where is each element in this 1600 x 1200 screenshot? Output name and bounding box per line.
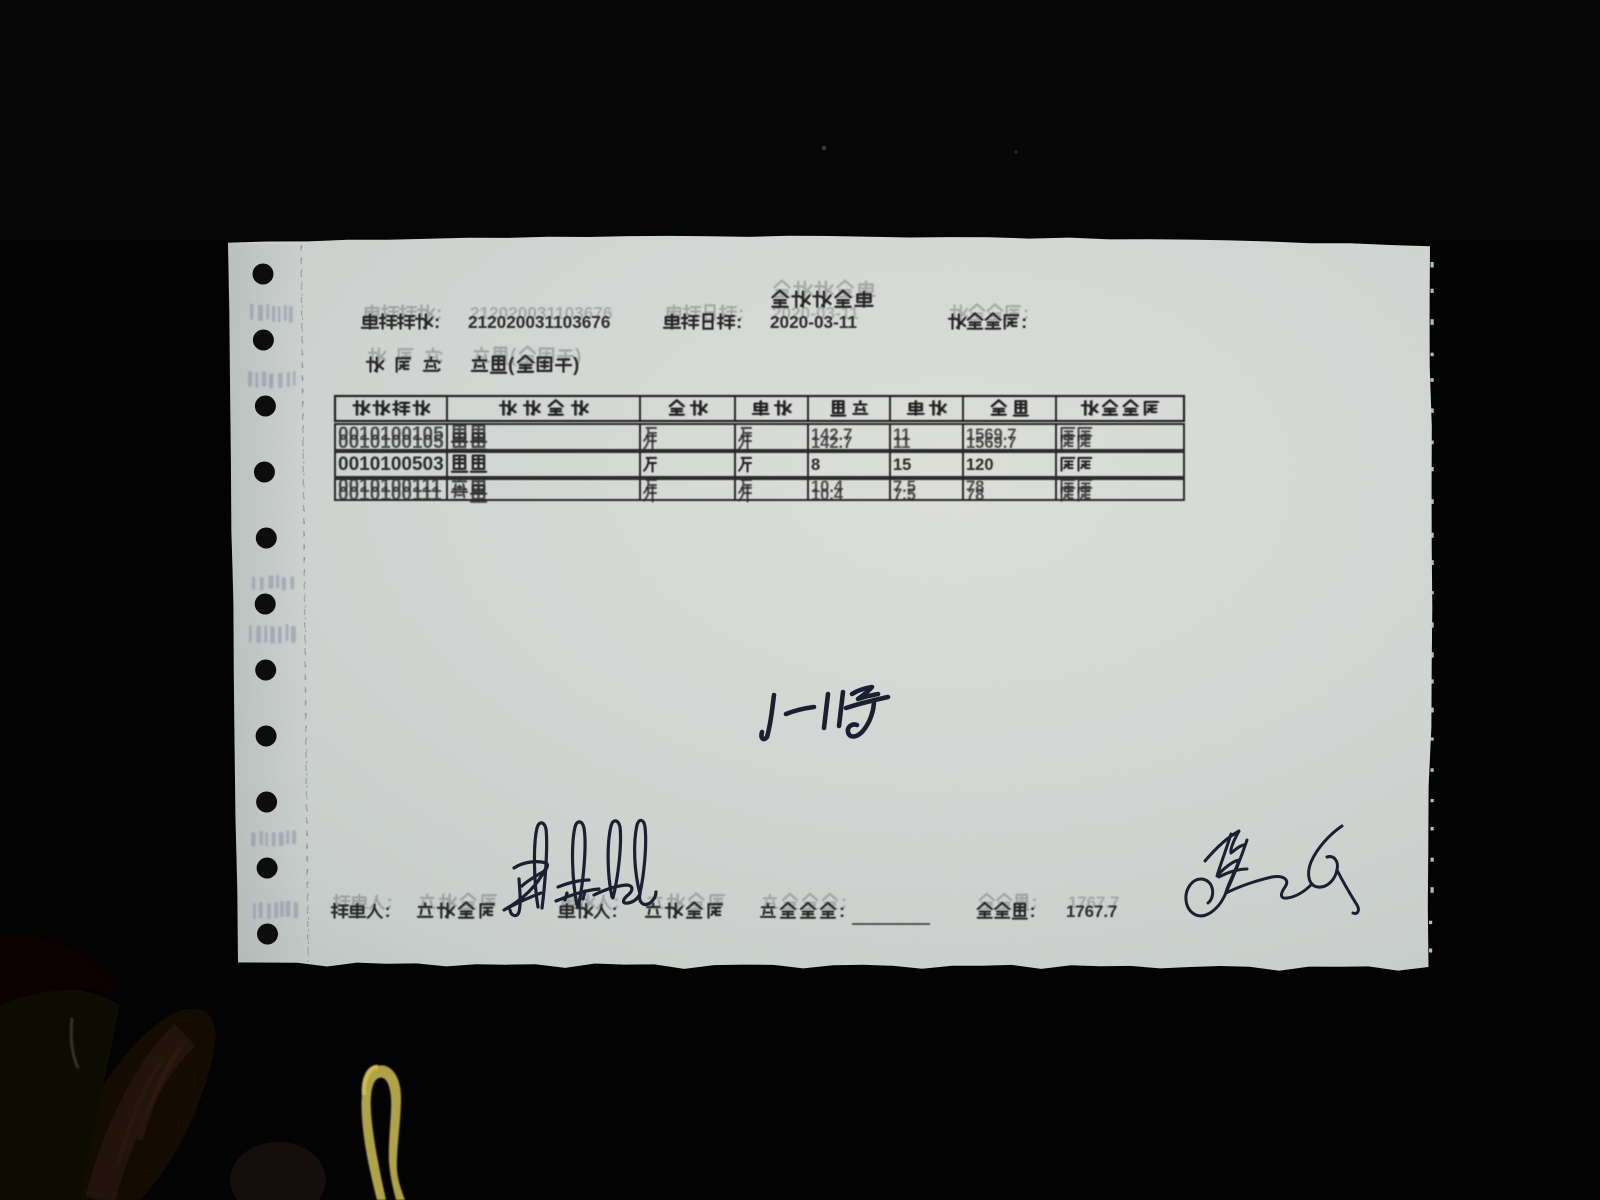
svg-text:2020-03-11: 2020-03-11 <box>772 303 859 323</box>
svg-text:78: 78 <box>966 486 984 504</box>
svg-text::: : <box>434 312 440 333</box>
svg-text:0010100503: 0010100503 <box>338 454 444 475</box>
svg-text:10.4: 10.4 <box>811 486 844 504</box>
svg-text:0010100105: 0010100105 <box>338 432 444 453</box>
svg-text::: : <box>1021 312 1027 333</box>
svg-text::: : <box>436 355 442 376</box>
svg-text:1569.7: 1569.7 <box>966 434 1016 452</box>
svg-text:120: 120 <box>966 456 994 474</box>
svg-text::: : <box>839 900 845 921</box>
svg-text::: : <box>612 900 618 921</box>
svg-text:0010100111: 0010100111 <box>338 484 442 505</box>
svg-text::: : <box>385 900 391 921</box>
svg-text:(: ( <box>508 355 515 376</box>
svg-text:7.5: 7.5 <box>893 486 916 504</box>
svg-text:11: 11 <box>893 434 910 452</box>
svg-text:142.7: 142.7 <box>811 434 852 452</box>
svg-text:1767.7: 1767.7 <box>1066 902 1117 921</box>
svg-text::: : <box>736 312 742 333</box>
svg-text:): ) <box>573 355 579 376</box>
svg-text:212020031103676: 212020031103676 <box>470 303 612 323</box>
svg-text::: : <box>1030 900 1036 921</box>
svg-text:8: 8 <box>811 456 820 474</box>
svg-text:15: 15 <box>893 456 911 474</box>
